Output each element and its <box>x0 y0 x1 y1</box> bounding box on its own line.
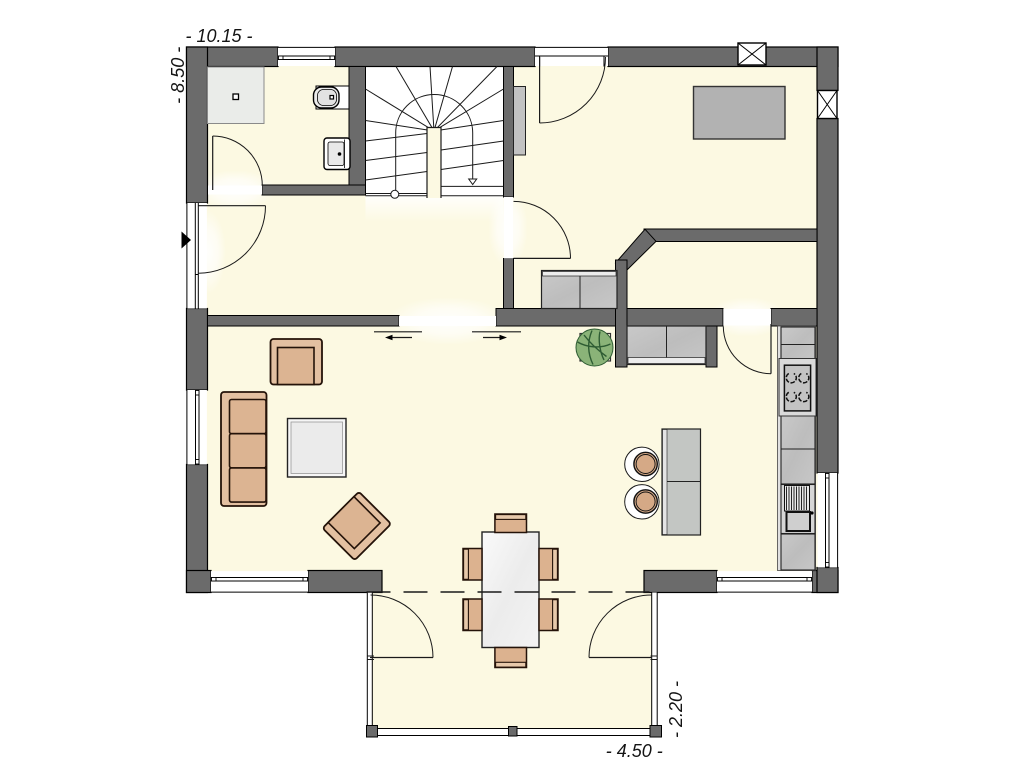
svg-text:- 10.15 -: - 10.15 - <box>185 26 252 46</box>
svg-text:- 4.50 -: - 4.50 - <box>606 741 663 761</box>
svg-text:- 8.50 -: - 8.50 - <box>168 47 188 104</box>
svg-text:- 2.20 -: - 2.20 - <box>666 681 686 738</box>
